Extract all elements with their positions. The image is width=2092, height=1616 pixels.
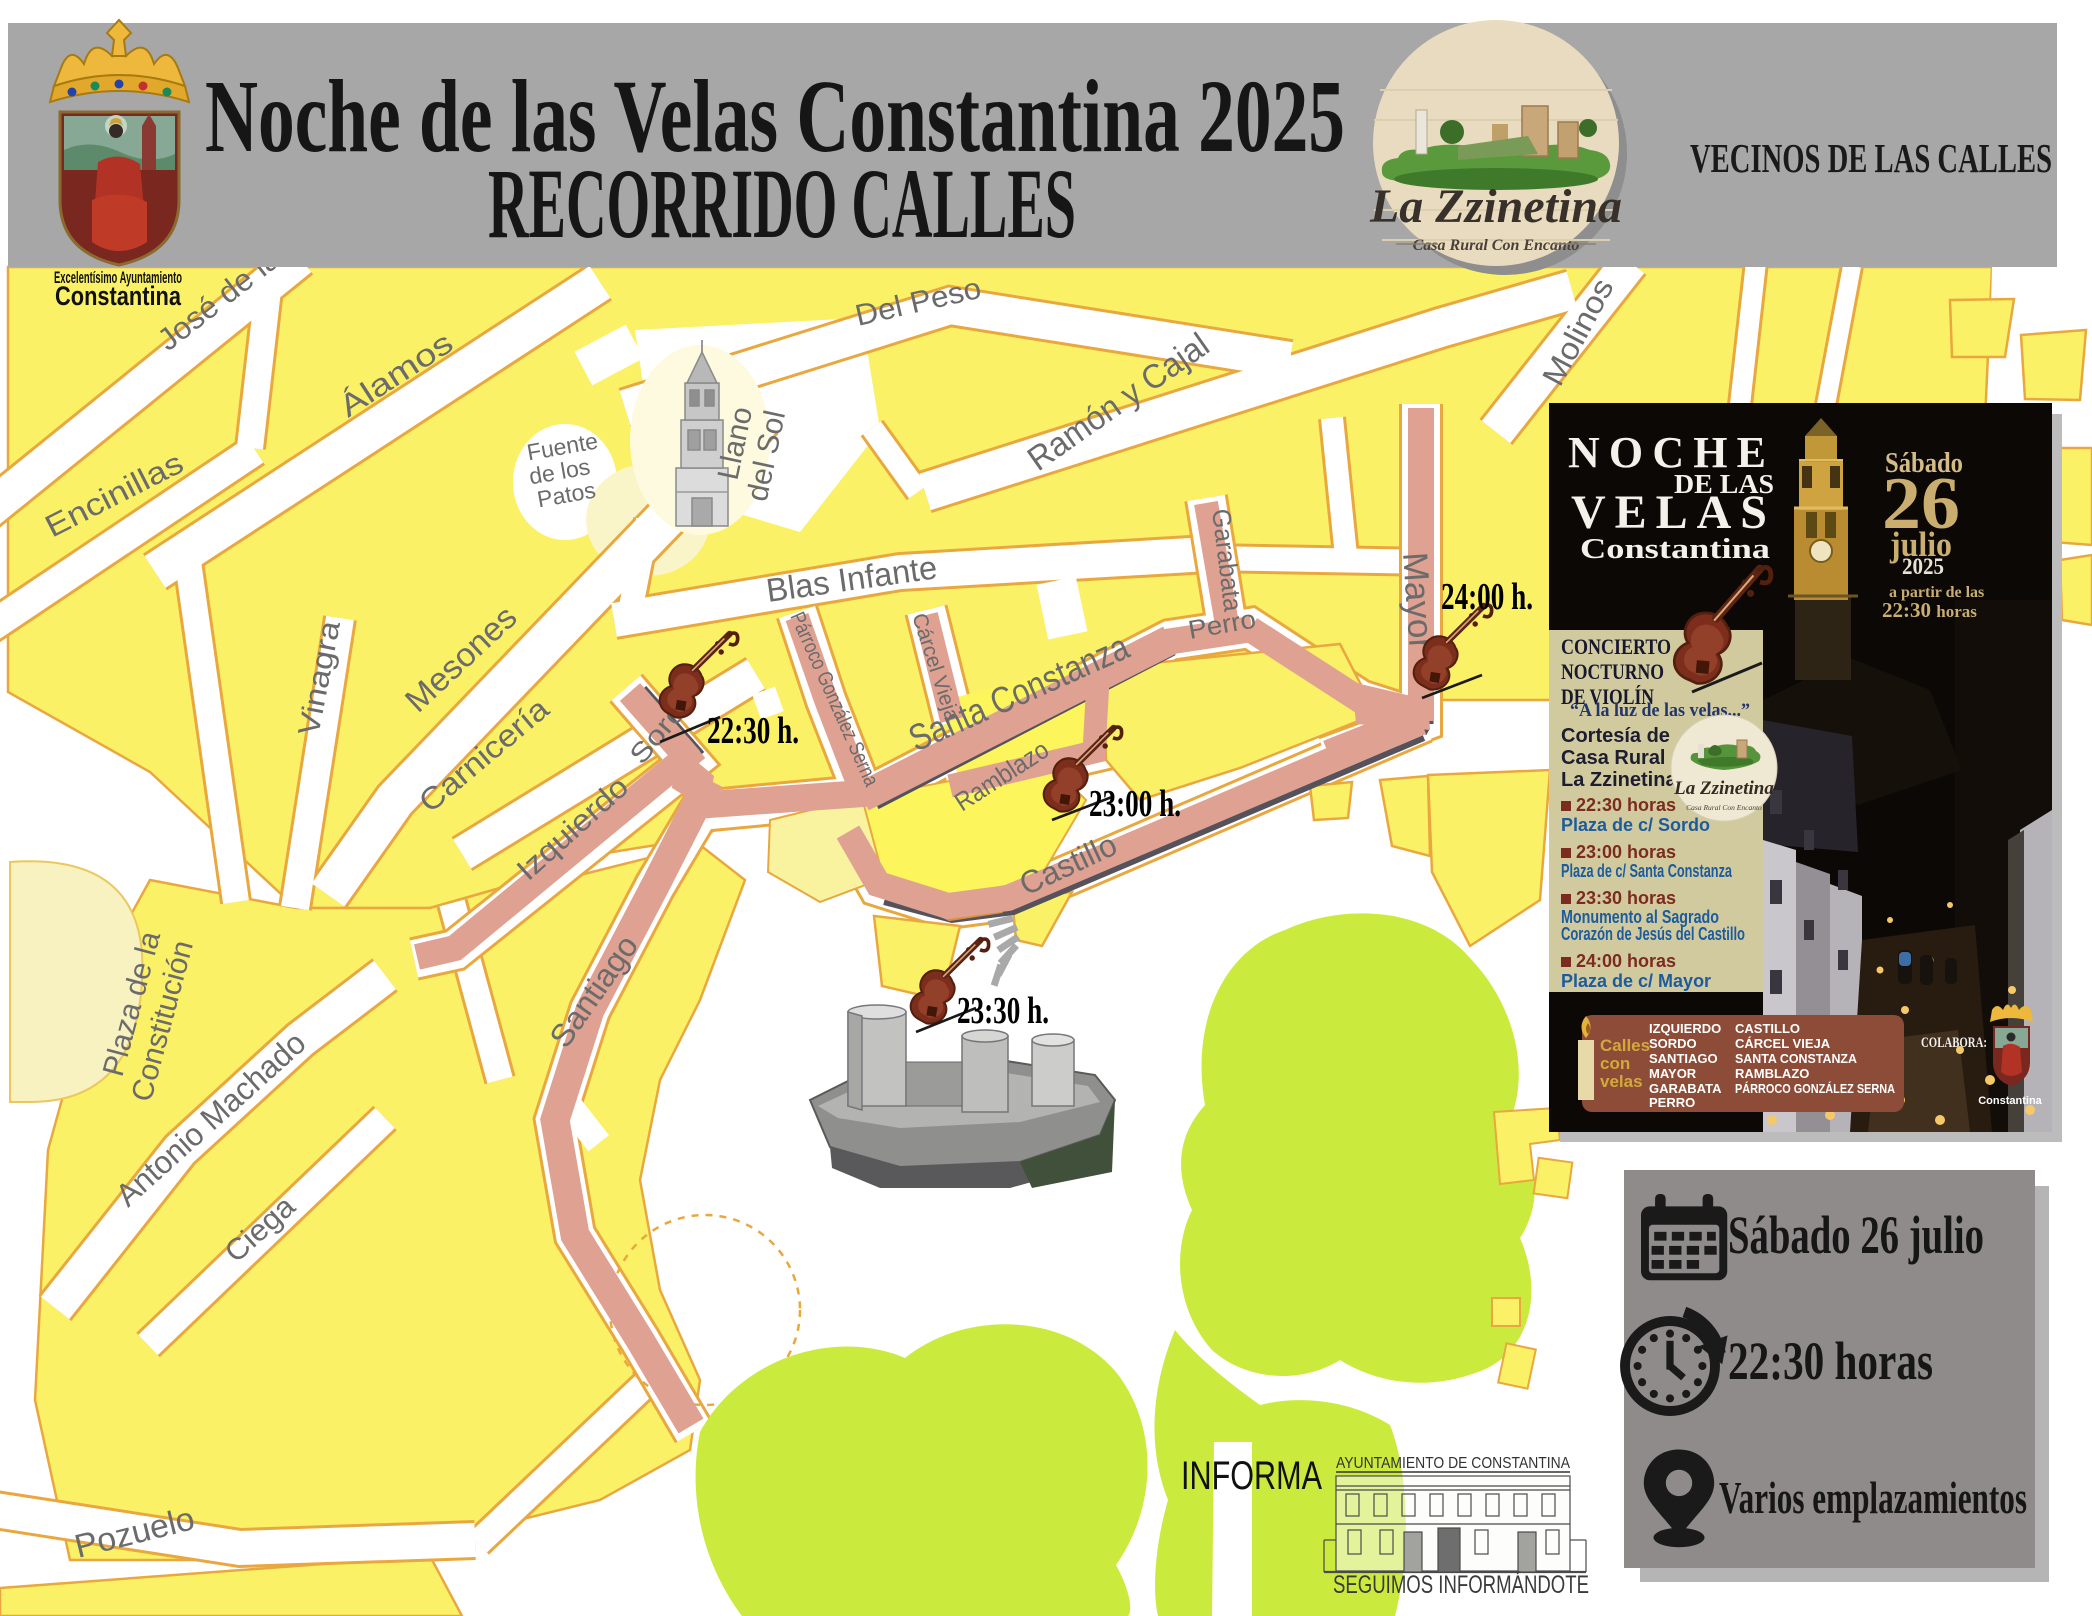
svg-text:con: con <box>1600 1054 1630 1073</box>
svg-text:Plaza de c/ Santa Constanza: Plaza de c/ Santa Constanza <box>1561 861 1733 881</box>
svg-text:CONCIERTO: CONCIERTO <box>1561 634 1671 659</box>
svg-text:Calles: Calles <box>1600 1036 1650 1055</box>
svg-text:La Zzinetina: La Zzinetina <box>1673 778 1774 799</box>
svg-text:22:30 horas: 22:30 horas <box>1728 1331 1933 1391</box>
svg-text:23:00 h.: 23:00 h. <box>1089 783 1181 825</box>
svg-text:23:30 h.: 23:30 h. <box>957 990 1049 1032</box>
svg-text:INFORMA: INFORMA <box>1181 1454 1322 1498</box>
svg-text:GARABATA: GARABATA <box>1649 1081 1722 1096</box>
svg-text:SANTIAGO: SANTIAGO <box>1649 1051 1718 1066</box>
svg-text:Constantina: Constantina <box>1580 533 1771 565</box>
svg-text:NOCTURNO: NOCTURNO <box>1561 659 1664 684</box>
svg-text:SANTA CONSTANZA: SANTA CONSTANZA <box>1735 1051 1858 1066</box>
svg-text:Corazón de Jesús del Castillo: Corazón de Jesús del Castillo <box>1561 924 1745 944</box>
svg-text:velas: velas <box>1600 1072 1643 1091</box>
svg-text:PERRO: PERRO <box>1649 1095 1695 1110</box>
svg-text:Plaza de c/ Sordo: Plaza de c/ Sordo <box>1561 815 1710 835</box>
svg-text:RECORRIDO CALLES: RECORRIDO CALLES <box>488 148 1076 259</box>
svg-text:IZQUIERDO: IZQUIERDO <box>1649 1021 1721 1036</box>
svg-text:COLABORA:: COLABORA: <box>1921 1035 1987 1051</box>
svg-text:Sábado 26 julio: Sábado 26 julio <box>1728 1205 1984 1265</box>
svg-text:Casa Rural Con Encanto: Casa Rural Con Encanto <box>1413 237 1580 254</box>
svg-text:Constantina: Constantina <box>55 281 182 311</box>
svg-text:24:00 h.: 24:00 h. <box>1441 576 1533 618</box>
svg-text:22:30 horas: 22:30 horas <box>1882 598 1977 622</box>
svg-text:Casa Rural Con Encanto: Casa Rural Con Encanto <box>1686 803 1762 812</box>
svg-text:23:00 horas: 23:00 horas <box>1576 842 1676 862</box>
svg-text:SEGUIMOS INFORMÁNDOTE: SEGUIMOS INFORMÁNDOTE <box>1333 1570 1589 1599</box>
svg-text:Constantina: Constantina <box>1978 1095 2042 1107</box>
svg-text:Cortesía de: Cortesía de <box>1561 725 1670 747</box>
svg-text:SORDO: SORDO <box>1649 1036 1697 1051</box>
svg-text:23:30 horas: 23:30 horas <box>1576 888 1676 908</box>
svg-text:La Zzinetina: La Zzinetina <box>1369 180 1622 233</box>
svg-text:22:30 horas: 22:30 horas <box>1576 795 1676 815</box>
svg-text:CASTILLO: CASTILLO <box>1735 1021 1800 1036</box>
svg-text:24:00 horas: 24:00 horas <box>1576 951 1676 971</box>
svg-text:Varios emplazamientos: Varios emplazamientos <box>1719 1473 2027 1523</box>
svg-text:Plaza de c/ Mayor: Plaza de c/ Mayor <box>1561 971 1711 991</box>
svg-text:PÁRROCO GONZÁLEZ SERNA: PÁRROCO GONZÁLEZ SERNA <box>1735 1081 1896 1096</box>
svg-text:22:30 h.: 22:30 h. <box>707 710 799 752</box>
svg-text:VECINOS DE LAS CALLES: VECINOS DE LAS CALLES <box>1690 135 2052 181</box>
svg-text:La Zzinetina: La Zzinetina <box>1561 769 1677 791</box>
svg-text:MAYOR: MAYOR <box>1649 1066 1697 1081</box>
svg-text:AYUNTAMIENTO DE CONSTANTINA: AYUNTAMIENTO DE CONSTANTINA <box>1336 1455 1570 1472</box>
svg-text:Casa Rural: Casa Rural <box>1561 747 1666 769</box>
svg-text:RAMBLAZO: RAMBLAZO <box>1735 1066 1809 1081</box>
svg-text:2025: 2025 <box>1902 554 1944 579</box>
svg-text:CÁRCEL VIEJA: CÁRCEL VIEJA <box>1735 1036 1831 1051</box>
